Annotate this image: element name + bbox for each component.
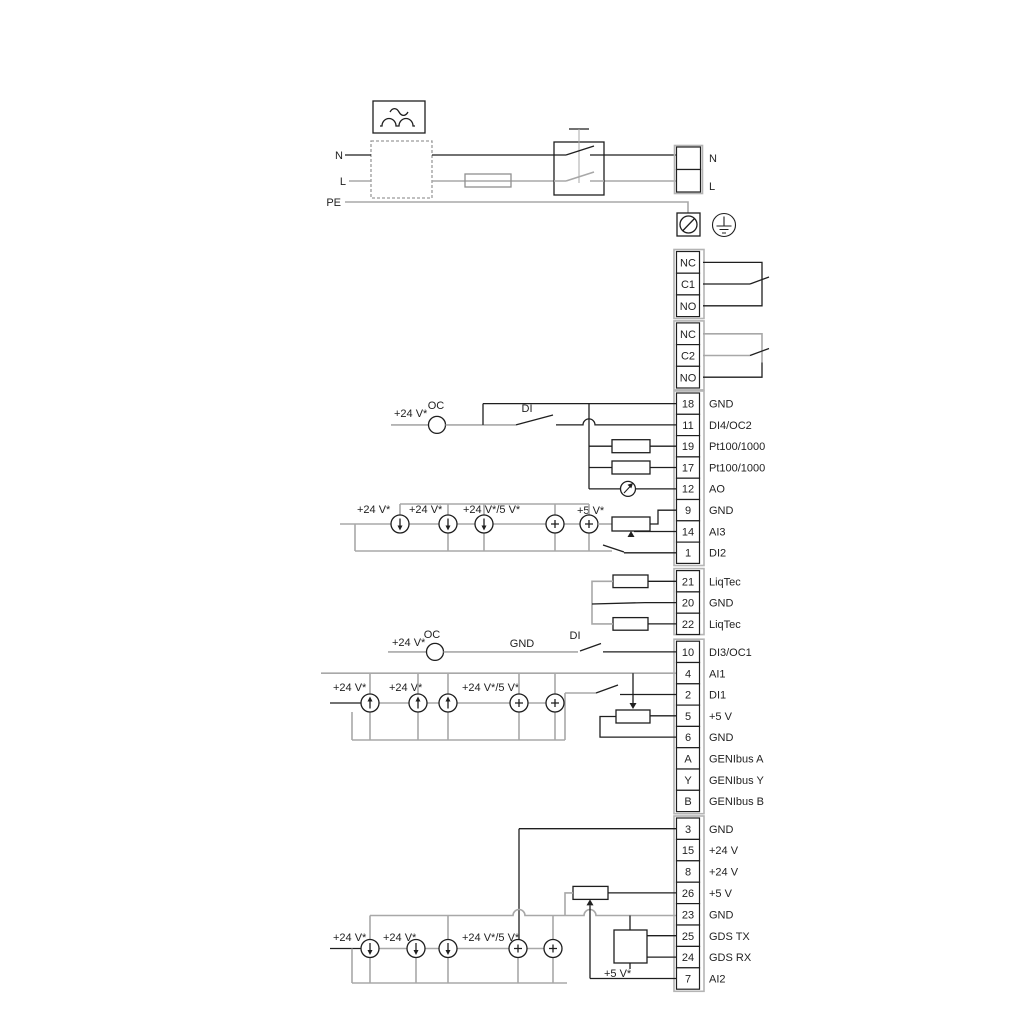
t10: 10 xyxy=(682,647,694,659)
liqtec-terminal-strip: 21 20 22 LiqTec GND LiqTec xyxy=(592,569,741,635)
mains-l-label: L xyxy=(340,176,346,188)
relay2-section: NC C2 NO xyxy=(674,321,769,390)
t19: 19 xyxy=(682,441,694,453)
t7-label: AI2 xyxy=(709,974,726,986)
t9: 9 xyxy=(685,505,691,517)
t18-label: GND xyxy=(709,399,734,411)
t11-label: DI4/OC2 xyxy=(709,420,752,432)
pe-screw-terminal-icon xyxy=(677,213,700,236)
tA: A xyxy=(684,754,692,766)
wiring-diagram-page: N L PE N L xyxy=(0,0,1024,1024)
current-source-down-icon xyxy=(361,940,457,958)
terminal-n-label: N xyxy=(709,153,717,165)
pt100-resistor-2 xyxy=(612,461,650,474)
relay1-contact xyxy=(703,262,769,305)
t21-label: LiqTec xyxy=(709,576,741,588)
bankB-l1: +24 V* xyxy=(333,682,367,694)
mains-wires xyxy=(345,155,688,213)
t8: 8 xyxy=(685,867,691,879)
t5-label: +5 V xyxy=(709,711,733,723)
t6: 6 xyxy=(685,732,691,744)
t14-label: AI3 xyxy=(709,526,726,538)
tB-label: GENIbus B xyxy=(709,796,764,808)
t23-label: GND xyxy=(709,909,734,921)
t19-label: Pt100/1000 xyxy=(709,441,765,453)
di3-gnd-label: GND xyxy=(510,638,535,650)
tB: B xyxy=(684,796,691,808)
protective-earth-icon xyxy=(713,214,736,237)
io2-terminal-strip: 10 4 2 5 6 A Y B DI3/OC1 AI1 DI1 +5 V GN… xyxy=(674,639,764,814)
open-collector-icon xyxy=(427,643,444,660)
t14: 14 xyxy=(682,526,694,538)
bankC-l1: +24 V* xyxy=(333,932,367,944)
rectifier-icon xyxy=(373,101,425,133)
t4-label: AI1 xyxy=(709,668,726,680)
t25-label: GDS TX xyxy=(709,931,750,943)
t2: 2 xyxy=(685,690,691,702)
filter-box xyxy=(371,141,432,198)
t26-label: +5 V xyxy=(709,888,733,900)
mains-n-label: N xyxy=(335,150,343,162)
di3-v24-label: +24 V* xyxy=(392,637,426,649)
t17-label: Pt100/1000 xyxy=(709,462,765,474)
current-source-up-icon xyxy=(361,694,457,712)
t9-label: GND xyxy=(709,505,734,517)
t15-label: +24 V xyxy=(709,845,739,857)
di4-oc-label: OC xyxy=(428,400,445,412)
t4: 4 xyxy=(685,668,691,680)
t22-label: LiqTec xyxy=(709,619,741,631)
bankB-l3: +24 V*/5 V* xyxy=(462,682,520,694)
t22: 22 xyxy=(682,619,694,631)
di3-di-label: DI xyxy=(570,630,581,642)
bankA-l1: +24 V* xyxy=(357,504,391,516)
potentiometer-ai1 xyxy=(600,673,676,737)
open-collector-icon xyxy=(429,416,446,433)
liqtec-sensors xyxy=(592,575,676,630)
di4-di-label: DI xyxy=(522,403,533,415)
gds-5v-label: +5 V* xyxy=(604,968,632,980)
t17: 17 xyxy=(682,462,694,474)
relay1-c1: C1 xyxy=(681,279,695,291)
relay2-contact xyxy=(703,334,769,377)
t12-label: AO xyxy=(709,484,725,496)
t21: 21 xyxy=(682,576,694,588)
t6-label: GND xyxy=(709,732,734,744)
t8-label: +24 V xyxy=(709,867,739,879)
analog-output-meter-icon xyxy=(589,481,676,496)
supply-bank-c: +5 V* +24 V* +24 V* +24 V*/5 V* xyxy=(330,829,676,983)
io3-terminal-strip: 3 15 8 26 23 25 24 7 GND +24 V +24 V +5 … xyxy=(674,816,752,991)
bankA-l3: +24 V*/5 V* xyxy=(463,504,521,516)
tA-label: GENIbus A xyxy=(709,754,764,766)
di4-section: +24 V* OC DI xyxy=(391,400,676,496)
pt100-resistor-1 xyxy=(612,440,650,453)
t3-label: GND xyxy=(709,824,734,836)
io1-terminal-strip: 18 11 19 17 12 9 14 1 GND DI4/OC2 Pt100/… xyxy=(674,391,765,566)
relay1-section: NC C1 NO xyxy=(674,250,769,319)
t7: 7 xyxy=(685,974,691,986)
t1-label: DI2 xyxy=(709,548,726,560)
t24-label: GDS RX xyxy=(709,952,752,964)
bankA-l2: +24 V* xyxy=(409,504,443,516)
t26: 26 xyxy=(682,888,694,900)
wiring-diagram-canvas: N L PE N L xyxy=(0,0,1024,1024)
relay2-nc: NC xyxy=(680,329,696,341)
liqtec-resistor-1 xyxy=(613,575,648,588)
terminal-l-label: L xyxy=(709,181,715,193)
relay2-c2: C2 xyxy=(681,351,695,363)
mains-section: N L PE N L xyxy=(326,101,735,237)
t15: 15 xyxy=(682,845,694,857)
t24: 24 xyxy=(682,952,694,964)
current-source-down-icon xyxy=(391,515,493,533)
liqtec-resistor-2 xyxy=(613,618,648,631)
t25: 25 xyxy=(682,931,694,943)
tY: Y xyxy=(684,775,692,787)
t20: 20 xyxy=(682,598,694,610)
di3-section: +24 V* OC GND DI xyxy=(388,629,676,660)
di1-switch xyxy=(596,685,618,693)
relay1-no: NO xyxy=(680,301,697,313)
tY-label: GENIbus Y xyxy=(709,775,764,787)
t20-label: GND xyxy=(709,598,734,610)
t5: 5 xyxy=(685,711,691,723)
gds-module: +5 V* xyxy=(604,916,676,981)
di4-switch xyxy=(516,415,553,425)
t2-label: DI1 xyxy=(709,690,726,702)
di3-oc-label: OC xyxy=(424,629,441,641)
supply-bank-a: +24 V* +24 V* +24 V*/5 V* +5 V* xyxy=(340,504,676,553)
mains-pe-label: PE xyxy=(326,197,341,209)
di3-switch xyxy=(580,644,601,652)
relay1-nc: NC xyxy=(680,258,696,270)
t3: 3 xyxy=(685,824,691,836)
di4-v24-label: +24 V* xyxy=(394,408,428,420)
potentiometer-ai3 xyxy=(598,510,676,537)
t18: 18 xyxy=(682,399,694,411)
t23: 23 xyxy=(682,909,694,921)
t12: 12 xyxy=(682,484,694,496)
main-switch xyxy=(554,129,604,195)
t10-label: DI3/OC1 xyxy=(709,647,752,659)
t1: 1 xyxy=(685,548,691,560)
mains-terminal-strip: N L xyxy=(675,146,718,194)
relay2-no: NO xyxy=(680,372,697,384)
supply-bank-b: +24 V* +24 V* +24 V*/5 V* xyxy=(321,673,676,740)
t11: 11 xyxy=(682,420,693,432)
